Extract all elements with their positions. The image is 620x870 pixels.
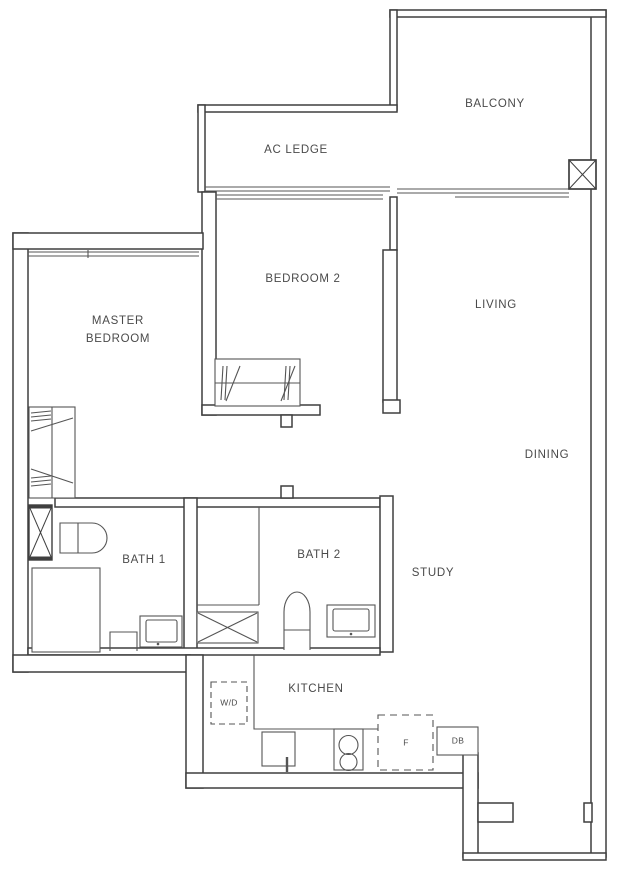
- room-label-master-bedroom: MASTER BEDROOM: [86, 313, 150, 349]
- bedroom2-wardrobe: [215, 359, 300, 406]
- balcony-sliding-door: [397, 189, 569, 197]
- wall-bath-top: [55, 498, 380, 507]
- room-label-study: STUDY: [412, 565, 454, 583]
- wall-kitchen-bottom: [186, 773, 478, 788]
- bathroom-fixtures: [32, 507, 375, 652]
- wall-bottomleft-outer: [13, 655, 190, 672]
- room-label-kitchen: KITCHEN: [288, 681, 343, 699]
- bath2-toilet: [284, 592, 310, 650]
- wall-bedroom2-tab: [281, 415, 292, 427]
- room-label-living: LIVING: [475, 297, 517, 315]
- floorplan-page: BALCONY AC LEDGE BEDROOM 2 LIVING MASTER…: [0, 0, 620, 870]
- master-window: [28, 250, 199, 258]
- bath2-vanity: [327, 605, 375, 637]
- wall-study: [380, 496, 393, 652]
- appliance-label-db: DB: [452, 734, 464, 747]
- wall-acledge-top: [198, 105, 397, 112]
- kitchen-hob: [334, 729, 363, 771]
- wall-right-notch: [584, 803, 592, 822]
- walls: [13, 10, 606, 860]
- balcony-column-x-icon: [569, 160, 596, 189]
- bath1-vanity: [140, 616, 182, 647]
- wardrobes: [29, 359, 300, 498]
- kitchen-fixtures: [211, 655, 478, 772]
- wall-bedroom2-living-upper: [390, 197, 397, 250]
- room-label-balcony: BALCONY: [465, 96, 525, 114]
- room-label-bath2: BATH 2: [297, 547, 341, 565]
- wall-master-bedroom2-divider: [202, 192, 216, 415]
- wall-bath-tab: [281, 486, 293, 498]
- floorplan-drawing: [0, 0, 620, 870]
- master-wardrobe: [29, 407, 75, 498]
- wall-bedroom2-living-main: [383, 250, 397, 402]
- appliance-label-fridge: F: [403, 736, 409, 749]
- wall-right-outer: [591, 10, 606, 857]
- room-label-bath1: BATH 1: [122, 552, 166, 570]
- wall-bottom-outer: [463, 853, 606, 860]
- wall-bath-divider: [184, 498, 197, 655]
- appliance-label-washer-dryer: W/D: [220, 696, 237, 709]
- bath1-shower: [32, 568, 100, 652]
- wall-master-top: [13, 233, 203, 249]
- bath2-shower: [197, 507, 259, 643]
- room-label-dining: DINING: [525, 447, 569, 465]
- wall-acledge-left: [198, 105, 205, 192]
- bedroom2-window: [216, 195, 383, 199]
- room-label-ac-ledge: AC LEDGE: [264, 142, 328, 160]
- wall-bedroom2-living-foot: [383, 400, 400, 413]
- wall-kitchen-left: [186, 655, 203, 788]
- wall-balcony-left: [390, 10, 397, 110]
- kitchen-sink: [262, 732, 295, 772]
- acledge-louvre: [205, 187, 390, 191]
- bath1-toilet: [60, 523, 107, 553]
- wall-corridor-left: [463, 753, 478, 857]
- wall-left-outer: [13, 233, 28, 672]
- service-shaft-x-icon: [29, 505, 52, 560]
- wall-corridor-jamb: [478, 803, 513, 822]
- wall-balcony-top: [390, 10, 606, 17]
- room-label-bedroom2: BEDROOM 2: [265, 271, 340, 289]
